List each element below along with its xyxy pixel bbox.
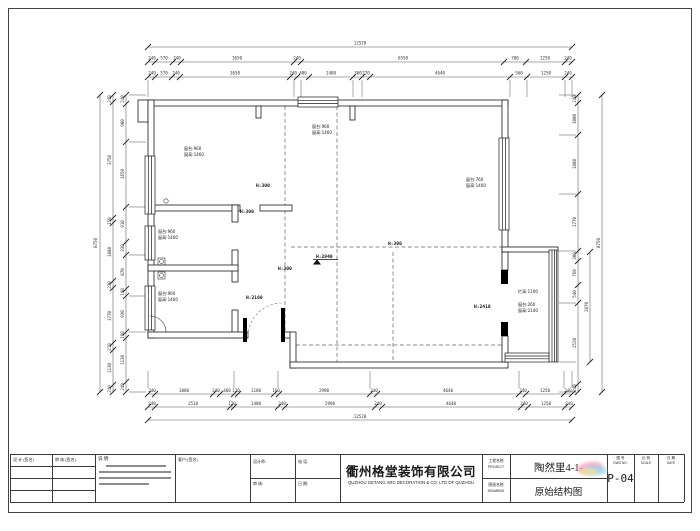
svg-text:300: 300: [572, 252, 577, 260]
top-dim-total: 12520: [354, 41, 367, 46]
svg-text:3750: 3750: [107, 154, 112, 165]
right-dim-chains: 240 1000 1800 1770 300 760 540 2520 240 …: [572, 95, 601, 392]
svg-text:H:2160: H:2160: [246, 295, 263, 301]
svg-text:窗台:260: 窗台:260: [518, 301, 536, 307]
svg-text:240: 240: [289, 71, 297, 76]
svg-text:2990: 2990: [325, 401, 336, 406]
svg-text:窗台:960: 窗台:960: [158, 228, 176, 234]
svg-text:700: 700: [511, 56, 519, 61]
svg-text:4640: 4640: [446, 401, 457, 406]
svg-text:240: 240: [212, 388, 220, 393]
svg-text:560: 560: [515, 71, 523, 76]
svg-text:760: 760: [572, 269, 577, 277]
project-label: 工程名称: [482, 459, 510, 464]
notes-text-line: [99, 471, 171, 473]
notes-text-line: [106, 465, 166, 467]
svg-text:870: 870: [120, 268, 125, 276]
svg-text:240: 240: [107, 385, 112, 393]
top-dim-row-1: 240 570 240 3650 240 6550 700 1250 240: [148, 56, 572, 61]
svg-text:H:300: H:300: [388, 241, 402, 247]
svg-text:210: 210: [107, 343, 112, 351]
svg-text:240: 240: [564, 56, 572, 61]
title-block-bottom-line: [10, 502, 684, 503]
svg-text:H:300: H:300: [240, 209, 254, 215]
svg-text:190: 190: [120, 288, 125, 296]
svg-text:窗高:1460: 窗高:1460: [184, 151, 204, 157]
svg-text:980: 980: [120, 119, 125, 127]
svg-text:6550: 6550: [398, 56, 409, 61]
beam-height-labels: H:300 H:300 H:300 H:300 H:2160 H:2410: [240, 183, 491, 310]
svg-text:窗高:1460: 窗高:1460: [312, 129, 332, 135]
svg-text:240: 240: [107, 95, 112, 103]
svg-text:240: 240: [148, 401, 156, 406]
svg-text:栏高:1100: 栏高:1100: [518, 288, 538, 294]
svg-text:2870: 2870: [584, 301, 589, 312]
svg-text:窗台:960: 窗台:960: [184, 145, 202, 151]
company-name-cn: 衢州格堂装饰有限公司: [340, 461, 482, 480]
svg-text:3650: 3650: [232, 56, 243, 61]
svg-text:1480: 1480: [326, 71, 337, 76]
svg-text:120: 120: [228, 401, 236, 406]
company-name-en: QUZHOU GETANG ARC DECORATION & CO. LTD O…: [340, 480, 482, 485]
scale-label-en: SCALE: [634, 461, 658, 465]
svg-text:1180: 1180: [251, 388, 262, 393]
svg-text:240: 240: [148, 71, 156, 76]
top-dim-row-2: 240 570 240 3650 240 400 1480 300 270 46…: [148, 71, 572, 76]
svg-text:240: 240: [278, 401, 286, 406]
svg-text:窗台:960: 窗台:960: [312, 123, 330, 129]
window-label-right: 窗台:760 窗高:1400: [466, 176, 486, 188]
svg-text:窗高:2140: 窗高:2140: [518, 307, 538, 313]
svg-text:8750: 8750: [596, 237, 601, 248]
svg-text:1650: 1650: [120, 168, 125, 179]
walls: [138, 100, 558, 368]
svg-text:1250: 1250: [541, 71, 552, 76]
svg-text:窗高:1460: 窗高:1460: [158, 296, 178, 302]
svg-text:4640: 4640: [435, 71, 446, 76]
title-block-top-line: [10, 454, 684, 455]
drawing-sheet: { "title_block": { "company_cn": "衢州格堂装饰…: [0, 0, 700, 531]
bottom-dim-row-2: 240 2510 120 1480 240 2990 240 4640 240 …: [148, 401, 573, 406]
svg-text:230: 230: [107, 281, 112, 289]
svg-text:240: 240: [564, 71, 572, 76]
window-label-room2: 窗台:960 窗高:1460: [158, 228, 178, 240]
ceiling-height-marker: H:2840: [313, 254, 338, 265]
svg-text:1130: 1130: [107, 362, 112, 373]
svg-text:4640: 4640: [443, 388, 454, 393]
svg-text:160: 160: [272, 388, 280, 393]
svg-text:240: 240: [572, 384, 577, 392]
balcony-labels: 栏高:1100 窗台:260 窗高:2140: [518, 288, 538, 313]
svg-text:240: 240: [148, 388, 156, 393]
svg-text:1770: 1770: [572, 216, 577, 227]
date-field-label: 日 期:: [298, 481, 308, 487]
svg-text:H:2410: H:2410: [474, 304, 491, 310]
svg-text:240: 240: [519, 388, 527, 393]
window-label-room3: 窗台:960 窗高:1460: [158, 290, 178, 302]
notes-text-line: [99, 477, 171, 479]
svg-text:1480: 1480: [251, 401, 262, 406]
left-dim-chains: 8750 240 3750 150 1880 230 1770 210 1130…: [93, 95, 125, 393]
svg-text:570: 570: [160, 56, 168, 61]
svg-text:3650: 3650: [230, 71, 241, 76]
designer-label: 设计师:: [253, 459, 266, 465]
svg-text:240: 240: [120, 383, 125, 391]
svg-text:240: 240: [293, 56, 301, 61]
svg-text:150: 150: [107, 217, 112, 225]
svg-text:1130: 1130: [120, 354, 125, 365]
svg-text:930: 930: [120, 310, 125, 318]
windows: [145, 97, 558, 362]
notes-label: 说 明:: [98, 456, 110, 462]
svg-text:1000: 1000: [572, 113, 577, 124]
svg-text:窗高:1400: 窗高:1400: [466, 182, 486, 188]
svg-text:240: 240: [572, 95, 577, 103]
svg-text:330: 330: [120, 244, 125, 252]
project-label-en: PROJECT: [482, 465, 510, 469]
svg-text:1770: 1770: [107, 310, 112, 321]
svg-text:窗台:760: 窗台:760: [466, 176, 484, 182]
svg-text:570: 570: [160, 71, 168, 76]
svg-text:240: 240: [520, 401, 528, 406]
svg-text:1880: 1880: [179, 388, 190, 393]
window-label-bedroom: 窗台:960 窗高:1460: [184, 145, 204, 157]
sign-column-2: 审 核 (签名): [55, 457, 76, 463]
drawing-label-en: DRAWING: [482, 489, 510, 493]
bottom-dim-total: 12520: [354, 414, 367, 419]
svg-text:240: 240: [172, 71, 180, 76]
svg-text:H:300: H:300: [256, 183, 270, 189]
svg-text:12520: 12520: [354, 414, 367, 419]
svg-text:240: 240: [374, 401, 382, 406]
window-label-top: 窗台:960 窗高:1460: [312, 123, 332, 135]
svg-text:270: 270: [362, 71, 370, 76]
drawing-label: 图纸名称: [482, 483, 510, 488]
svg-text:240: 240: [370, 388, 378, 393]
svg-text:460: 460: [223, 388, 231, 393]
svg-text:窗高:1460: 窗高:1460: [158, 234, 178, 240]
svg-text:窗台:960: 窗台:960: [158, 290, 176, 296]
svg-text:240: 240: [148, 56, 156, 61]
svg-text:1250: 1250: [540, 388, 551, 393]
door-jambs: [243, 270, 508, 342]
svg-text:1250: 1250: [540, 56, 551, 61]
svg-text:300: 300: [354, 71, 362, 76]
svg-text:2520: 2520: [572, 337, 577, 348]
beam-lines: [285, 106, 502, 362]
drawing-name: 原始结构图: [510, 484, 607, 498]
svg-text:12520: 12520: [354, 41, 367, 46]
svg-text:2990: 2990: [319, 388, 330, 393]
client-label: 客户:(签名): [178, 457, 198, 463]
floor-plan: 12520 240 570 240 3650 240 6550 700 1250…: [0, 0, 700, 452]
bottom-dim-row-1: 240 1880 240 460 120 1180 160 2990 240 4…: [148, 388, 572, 393]
extension-lines: [129, 80, 576, 392]
svg-text:120: 120: [232, 388, 240, 393]
svg-text:910: 910: [120, 220, 125, 228]
svg-text:240: 240: [565, 401, 573, 406]
sheet-no-label-en: DWG NO.: [607, 461, 634, 465]
svg-text:1800: 1800: [572, 158, 577, 169]
sign-column-1: 设 计 (签名): [13, 457, 34, 463]
svg-text:H:300: H:300: [278, 266, 292, 272]
phone-label: 电 话:: [298, 459, 308, 465]
svg-text:1880: 1880: [107, 246, 112, 257]
svg-text:1250: 1250: [541, 401, 552, 406]
svg-text:160: 160: [120, 331, 125, 339]
svg-text:540: 540: [572, 290, 577, 298]
notes-text-line: [99, 483, 149, 485]
check-label: 审 核:: [253, 481, 263, 487]
svg-text:240: 240: [173, 56, 181, 61]
svg-text:240: 240: [120, 95, 125, 103]
svg-text:8750: 8750: [93, 237, 98, 248]
svg-text:400: 400: [299, 71, 307, 76]
date-label-en: DATE: [658, 461, 684, 465]
sheet-number: P-04: [607, 472, 634, 485]
svg-text:2510: 2510: [188, 401, 199, 406]
approval-stamp: [580, 468, 598, 476]
